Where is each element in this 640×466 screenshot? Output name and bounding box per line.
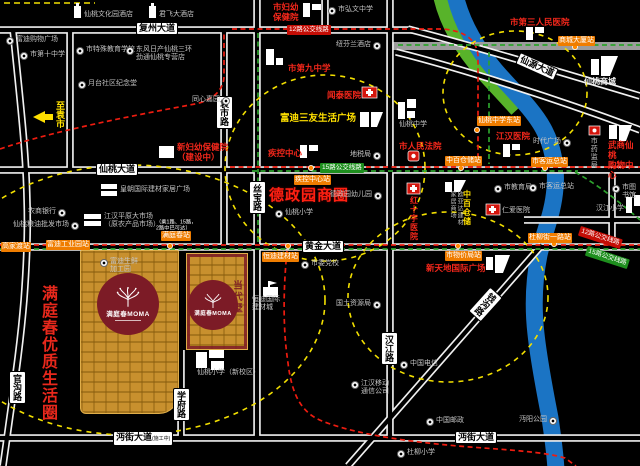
poi-label: 中国邮政 [426, 417, 464, 426]
poi-icon [426, 418, 434, 426]
poi-label: 疾控中心 [268, 148, 302, 158]
poi-icon [373, 152, 381, 160]
poi-label: 仙桃文化园酒店 [84, 11, 133, 19]
poi-label: 武商仙桃 购物中心 [608, 140, 640, 180]
road-label: 丝宝路 [249, 181, 266, 214]
poi-label: 市第三人民医院 [510, 17, 570, 27]
poi-label: 东风日产仙桃三环 劲通仙桃专营店 [126, 46, 192, 63]
poi-icon [400, 361, 408, 369]
poi-icon [78, 81, 86, 89]
poi-label: 同心嘉园 [192, 96, 230, 105]
bus-stop-label: 满庭春站 [161, 231, 191, 241]
poi-icon [100, 259, 108, 267]
bus-stop-label: 仙桃中学东站 [477, 116, 521, 126]
road-label: 钱沟路 [468, 287, 503, 323]
bus-stop-label: 杜柳街一路站 [528, 233, 572, 243]
poi-label: 地税局 [350, 151, 381, 160]
poi-label: 江汉移动 通信公司 [351, 380, 389, 397]
poi-label: 仙桃小学（新校区） [197, 369, 260, 377]
poi-label: 汉江小学 [596, 205, 624, 213]
poi-label: 中百仓储 [462, 190, 471, 226]
poi-label: 市妇幼 保健院 [273, 2, 299, 22]
bus-stop-label: 疾控中心站 [294, 175, 331, 185]
road-label: 学府路 [173, 388, 190, 421]
bus-line-label: 12路公交线路 [287, 25, 331, 35]
poi-icon [397, 450, 405, 458]
poi-icon [373, 42, 381, 50]
road-label: 黄金大道 [302, 240, 344, 253]
poi-icon [275, 210, 283, 218]
poi-label: 仙桃粮油批发市场 [13, 221, 79, 230]
poi-icon [20, 52, 28, 60]
poi-label: 市药监局 [589, 137, 597, 169]
poi-icon [71, 222, 79, 230]
poi-icon [222, 97, 230, 105]
poi-label: 江汉医院 [496, 131, 530, 141]
direction-label: 至袁市 [54, 101, 67, 128]
poi-label: 仙桃中学 [399, 121, 427, 129]
poi-label: 杜柳小学 [397, 449, 435, 458]
road-label: 沔街大道 [455, 431, 497, 444]
poi-icon [301, 261, 309, 269]
poi-icon [563, 139, 571, 147]
poi-label: 市图书馆 [612, 184, 640, 201]
poi-icon [126, 47, 134, 55]
poi-label: 时代广场 [533, 138, 571, 147]
poi-icon [373, 301, 381, 309]
poi-label: 市客运总站 [529, 183, 574, 192]
poi-label: 纽芬兰酒店 [336, 41, 381, 50]
bus-stop-label: 高家渡站 [1, 242, 31, 252]
zone-mantingchun: 满庭春优质生活圈 [35, 285, 59, 421]
poi-label: 德政园幼儿园 [330, 191, 382, 200]
bus-stop-label: 市物价局站 [445, 251, 482, 261]
poi-label: 富迪生鲜 加工园 [100, 258, 138, 275]
road-label: 仙源大道 [515, 52, 559, 81]
poi-label: 市第十中学 [20, 51, 65, 60]
bus-stop-label: 市客运总站 [531, 157, 568, 167]
poi-label: 仙桃小学 [275, 209, 313, 218]
poi-icon [549, 417, 557, 425]
bus-line-label: 15路公交线路 [585, 246, 630, 269]
poi-label: 市委党校 [301, 260, 339, 269]
poi-label: 闻泰医院 [327, 90, 361, 100]
poi-label: 市教育局 [494, 184, 532, 193]
poi-icon [328, 7, 336, 15]
poi-icon [58, 209, 66, 217]
poi-icon [612, 185, 620, 193]
poi-label: 富迪三友生活广场 [280, 113, 356, 124]
poi-label: 月台社区纪念堂 [78, 80, 137, 89]
poi-label: 中国电信 [400, 360, 438, 369]
road-label: 汉江路 [381, 332, 398, 365]
poi-icon [529, 184, 537, 192]
bus-note-line1: （乘1路、15路， [156, 220, 196, 226]
bus-line-label: 12路公交线路 [578, 226, 623, 249]
poi-label: 市弘文中学 [328, 6, 373, 15]
bus-stop-label: 恒迪建材站 [262, 252, 299, 262]
location-map: 满庭春MOMA 满庭春MOMA 当代墅 德政园商圈 满庭春优质生活圈 至袁市 （… [0, 0, 640, 466]
poi-label: 江汉平原大市场 （原农产品市场） [104, 213, 160, 230]
poi-label: 国土资源局 [336, 300, 381, 309]
bus-stop-label: 富迪工业园站 [46, 240, 90, 250]
bus-stop-label: 中百仓储站 [445, 156, 482, 166]
poi-label: 农商银行 [28, 208, 66, 217]
poi-label: 君飞大酒店 [159, 11, 194, 19]
labels-layer: 德政园商圈 满庭春优质生活圈 至袁市 （乘1路、15路， 2路中巴可达） 复州大… [0, 0, 640, 466]
poi-label: 新天地国际广场 [426, 263, 486, 273]
poi-label: 新妇幼保健院 （建设中） [177, 142, 228, 162]
poi-icon [351, 381, 359, 389]
road-label: 复州大道 [136, 22, 178, 35]
poi-icon [6, 37, 14, 45]
poi-label: 恒迪国际 建材城 [252, 296, 280, 313]
bus-stop-label: 商城大厦站 [558, 36, 595, 46]
poi-label: 仙桃商城 [584, 77, 616, 86]
poi-label: 沔阳公园 [519, 416, 557, 425]
poi-icon [76, 47, 84, 55]
poi-icon [374, 192, 382, 200]
bus-line-label: 15路公交线路 [320, 163, 364, 173]
road-label: 沔街大道(施工中) [113, 431, 173, 446]
road-label: 仙桃大道 [96, 163, 138, 176]
poi-label: 红十字医院 [409, 196, 418, 241]
poi-label: 市人民法院 [399, 141, 442, 151]
poi-label: 富迪购物广场 [6, 36, 58, 45]
road-label: 官沟路 [9, 371, 26, 404]
poi-label: 皇朝国际建材家居广场 [120, 186, 190, 194]
poi-icon [494, 185, 502, 193]
poi-label: 市第九中学 [288, 63, 331, 73]
poi-label: 仁爱医院 [502, 207, 530, 215]
